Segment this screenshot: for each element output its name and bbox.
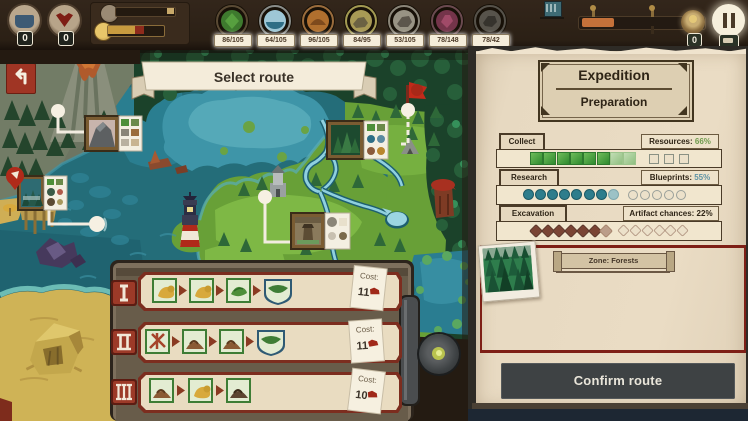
- svg-text:Select route: Select route: [214, 69, 294, 85]
- svg-text:10: 10: [355, 389, 369, 402]
- svg-text:11: 11: [356, 340, 368, 353]
- svg-text:Cost:: Cost:: [356, 324, 375, 334]
- svg-text:11: 11: [357, 286, 370, 299]
